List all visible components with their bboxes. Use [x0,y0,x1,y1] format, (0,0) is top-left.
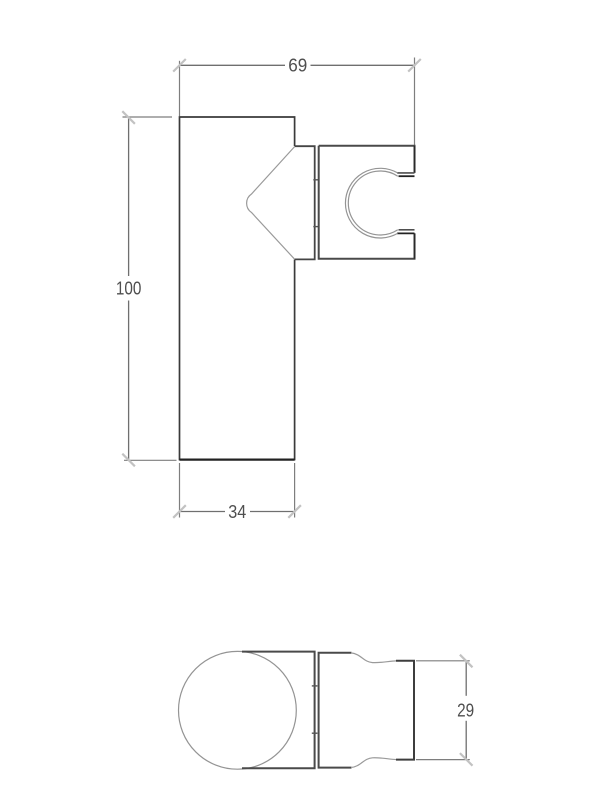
svg-text:100: 100 [116,278,142,299]
svg-text:29: 29 [457,699,474,720]
svg-text:69: 69 [288,55,307,76]
svg-text:34: 34 [228,501,246,522]
